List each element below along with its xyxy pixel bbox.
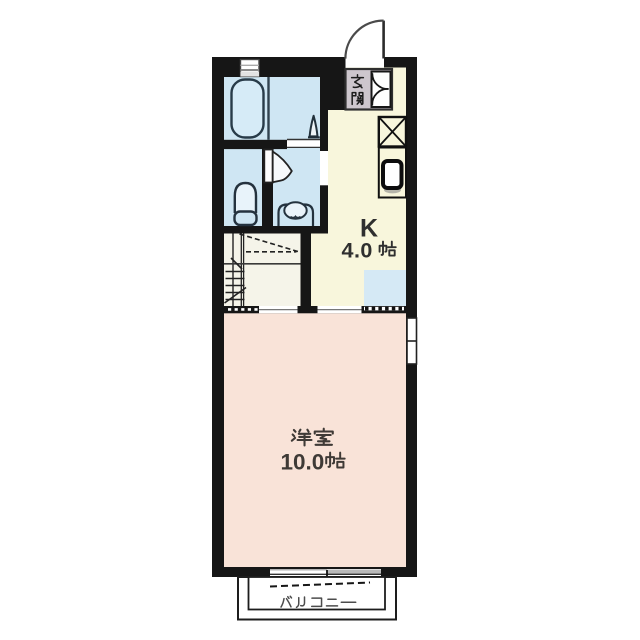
svg-text:4.0: 4.0 — [342, 238, 373, 262]
svg-text:10.0: 10.0 — [281, 450, 325, 475]
